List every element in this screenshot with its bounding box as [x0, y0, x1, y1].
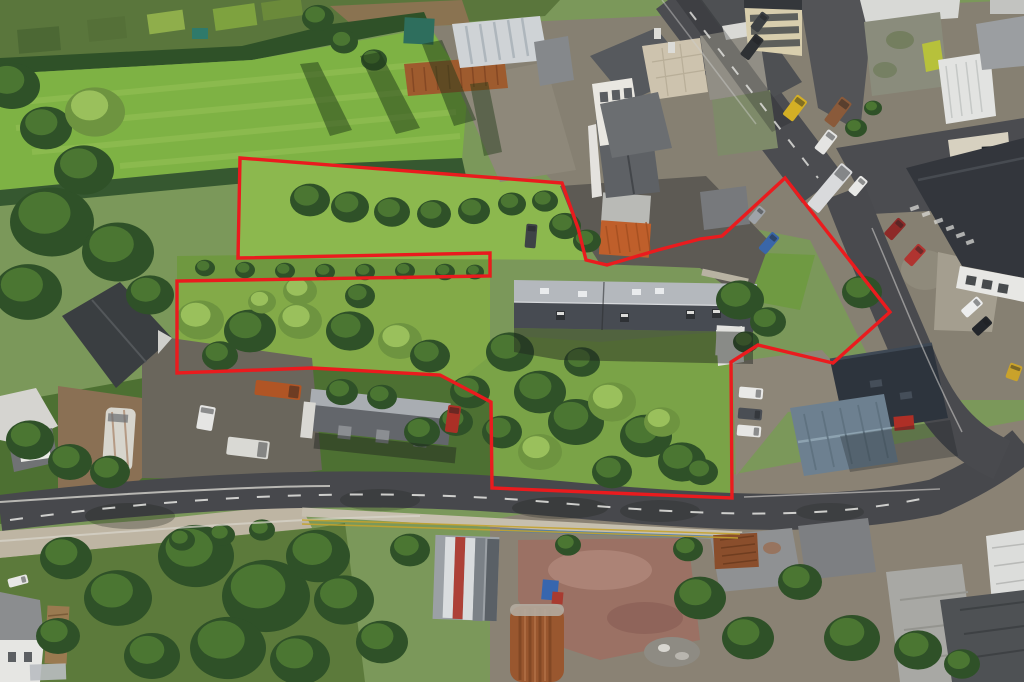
vehicle-windshield	[753, 427, 759, 435]
tree-canopy-light	[522, 436, 549, 458]
road-tree-shadow	[512, 497, 608, 519]
vegetation-16	[573, 230, 601, 253]
vegetation-59	[40, 537, 92, 580]
vegetation-32	[410, 340, 450, 373]
dormer-face	[687, 311, 694, 314]
vegetation-48	[482, 416, 522, 449]
house-window	[624, 88, 633, 99]
vegetation-11	[417, 200, 451, 228]
tree-canopy-light	[866, 102, 877, 111]
tree-canopy-light	[198, 621, 245, 659]
vehicle-windshield	[527, 226, 535, 232]
tree-canopy-light	[552, 214, 572, 230]
tree-canopy-light	[648, 409, 670, 427]
tree-canopy-light	[11, 423, 41, 447]
dark-van-lobe	[524, 224, 537, 249]
tractor-trailer	[551, 592, 563, 605]
dirt-patch	[607, 602, 683, 634]
vegetation-31	[345, 284, 375, 309]
vegetation-34	[248, 291, 276, 314]
greenhouse	[30, 663, 67, 680]
vegetation-38	[326, 379, 358, 405]
vegetation-65	[124, 633, 180, 679]
vegetation-85	[845, 119, 867, 137]
caravan-window	[108, 413, 129, 422]
tree-canopy-light	[172, 531, 188, 544]
tree-canopy-light	[71, 90, 108, 120]
vegetation-77	[824, 615, 880, 661]
road-tree-shadow	[340, 489, 420, 511]
vegetation-49	[592, 456, 632, 489]
tree-canopy-light	[558, 536, 574, 549]
vegetation-50	[644, 407, 680, 437]
tree-canopy-light	[333, 32, 350, 46]
aerial-photo-container: Aerial drone photograph of a village pro…	[0, 0, 1024, 682]
skylight	[655, 288, 664, 294]
vegetation-66	[36, 618, 80, 654]
vegetation-25	[176, 300, 224, 339]
tree-canopy-light	[45, 539, 77, 565]
white-metal-barn	[452, 16, 548, 68]
dirt-patch	[548, 550, 652, 590]
vegetation-79	[944, 649, 980, 679]
vegetation-33	[202, 341, 238, 371]
tree-canopy-light	[251, 292, 268, 306]
tree-canopy-light	[830, 618, 865, 646]
vegetation-47	[518, 434, 562, 470]
vegetation-63	[190, 617, 266, 679]
tree-canopy-light	[847, 120, 861, 131]
garden-pond	[192, 28, 208, 39]
tree-canopy-light	[320, 578, 357, 608]
tree-canopy-light	[378, 199, 400, 217]
parked-white-car	[737, 424, 762, 437]
vegetation-80	[673, 537, 703, 562]
rubble-pile	[644, 637, 700, 667]
vegetation-17	[195, 260, 215, 276]
dormer-face	[713, 310, 720, 313]
vegetation-36	[48, 444, 92, 480]
flat-grey-building	[700, 186, 750, 230]
vegetation-13	[498, 193, 526, 216]
vegetation-78	[894, 630, 942, 669]
tree-canopy-light	[420, 202, 441, 219]
moss-patch	[873, 62, 897, 78]
vegetation-71	[169, 529, 195, 550]
vegetation-44	[588, 382, 636, 421]
dormer-face	[557, 312, 564, 315]
skylight	[540, 288, 549, 294]
vegetation-83	[330, 31, 358, 54]
vehicle-windshield	[755, 389, 761, 397]
tree-canopy-light	[294, 186, 319, 206]
tree-canopy-light	[1, 268, 43, 302]
vegetation-81	[555, 534, 581, 555]
vegetation-69	[356, 621, 408, 664]
tree-canopy-light	[89, 226, 134, 262]
tree-canopy-light	[305, 6, 325, 22]
vegetation-3	[54, 145, 114, 194]
moss-patch	[886, 31, 914, 49]
vegetation-39	[367, 385, 397, 410]
vegetation-37	[90, 456, 130, 489]
vegetation-60	[84, 570, 152, 626]
tree-canopy-light	[276, 638, 313, 668]
vegetation-4	[126, 275, 174, 314]
skylight	[632, 289, 641, 295]
vegetation-10	[374, 197, 410, 227]
tree-canopy-light	[535, 192, 551, 205]
vegetation-35	[6, 420, 54, 459]
skylight	[578, 291, 587, 297]
tree-canopy-light	[554, 402, 589, 430]
vegetation-82	[302, 5, 334, 31]
parked-white-car	[739, 386, 764, 399]
road-tree-shadow	[796, 503, 864, 521]
shop-window	[997, 283, 1008, 294]
cottage-window	[8, 652, 16, 662]
tree-canopy-light	[721, 283, 751, 307]
tree-canopy-light	[131, 278, 161, 302]
tree-canopy-light	[25, 109, 57, 135]
tree-canopy-light	[689, 460, 709, 476]
vegetation-18	[235, 262, 255, 278]
vehicle-windshield	[257, 442, 268, 458]
tree-canopy-light	[408, 419, 430, 437]
road-tree-shadow	[85, 503, 175, 529]
tree-canopy-light	[94, 458, 119, 478]
tree-canopy-light	[948, 651, 970, 669]
shop-window	[965, 275, 976, 286]
tree-canopy-light	[181, 303, 211, 327]
tree-canopy-light	[237, 263, 249, 273]
garden-plot	[87, 16, 127, 42]
tree-canopy-light	[468, 266, 479, 275]
house-window	[612, 90, 621, 101]
house-window	[600, 92, 609, 103]
vegetation-27	[278, 303, 322, 339]
tree-canopy-light	[348, 285, 367, 300]
vegetation-19	[275, 263, 295, 279]
tree-canopy-light	[357, 265, 369, 275]
tr-grey-building	[976, 16, 1024, 70]
vehicle-windshield	[288, 385, 300, 398]
tree-canopy-light	[596, 458, 621, 478]
tree-canopy-light	[754, 309, 776, 327]
tree-canopy-light	[52, 446, 79, 468]
rubble-white	[658, 644, 670, 652]
vegetation-40	[404, 417, 440, 447]
vegetation-7	[65, 87, 125, 136]
tree-canopy-light	[91, 574, 133, 608]
tree-canopy-light	[382, 325, 409, 347]
vegetation-74	[674, 577, 726, 620]
chimney	[668, 42, 675, 53]
tree-canopy-light	[231, 564, 286, 608]
vegetation-28	[326, 311, 374, 350]
vegetation-86	[864, 101, 882, 116]
rubble-grey	[675, 652, 689, 660]
tree-canopy-light	[212, 526, 228, 539]
tree-canopy-light	[593, 385, 623, 409]
rust-patch	[763, 542, 781, 554]
tree-canopy-light	[229, 312, 261, 338]
tree-canopy-light	[679, 579, 711, 605]
tree-canopy-light	[282, 305, 309, 327]
tree-canopy-light	[292, 533, 332, 565]
vegetation-70	[390, 534, 430, 567]
tree-canopy-light	[130, 636, 165, 664]
tree-canopy-light	[899, 633, 929, 657]
tree-canopy-light	[361, 623, 393, 649]
tree-canopy-light	[331, 314, 361, 338]
vegetation-14	[532, 190, 558, 211]
tree-canopy-light	[461, 199, 481, 215]
vegetation-64	[286, 530, 350, 582]
tree-canopy-light	[394, 536, 419, 556]
tree-canopy-light	[206, 343, 228, 361]
shop-window	[981, 279, 992, 290]
vegetation-0	[10, 188, 94, 257]
parked-dark-car	[738, 407, 763, 420]
grey-outbuilding	[534, 36, 574, 86]
cottage-window	[24, 652, 32, 662]
chimney	[654, 28, 661, 39]
vegetation-67	[314, 575, 374, 624]
tree-canopy-light	[501, 194, 518, 208]
vegetation-9	[331, 191, 369, 222]
tree-canopy-light	[329, 380, 349, 396]
tree-canopy-light	[414, 342, 439, 362]
tree-canopy-light	[782, 566, 809, 588]
tree-canopy-light	[727, 619, 759, 645]
dormer-face	[621, 314, 628, 317]
vegetation-72	[209, 524, 235, 545]
vegetation-56	[750, 307, 786, 337]
aerial-site-photo	[0, 0, 1024, 682]
tree-canopy-light	[40, 620, 67, 642]
tree-canopy-light	[286, 279, 307, 296]
tree-canopy-light	[197, 261, 209, 271]
teal-roof-shed	[403, 17, 434, 45]
tree-canopy-light	[519, 373, 551, 399]
tree-canopy-light	[370, 386, 389, 401]
tree-canopy-light	[437, 265, 449, 275]
tree-canopy-light	[317, 265, 329, 275]
vegetation-6	[20, 107, 72, 150]
tree-canopy-light	[663, 445, 693, 469]
vegetation-8	[290, 184, 330, 217]
tr-roof-bit	[990, 0, 1024, 14]
vegetation-75	[722, 617, 774, 660]
vegetation-1	[82, 222, 154, 281]
vegetation-76	[778, 564, 822, 600]
vehicle-windshield	[754, 410, 760, 418]
tree-canopy-light	[60, 148, 97, 178]
tree-canopy-light	[676, 538, 695, 553]
tree-canopy-light	[335, 193, 359, 212]
garden-plot	[17, 26, 61, 54]
vegetation-12	[458, 198, 490, 224]
silo-top-band	[510, 604, 564, 616]
tree-canopy-light	[397, 264, 409, 274]
tree-canopy-light	[18, 192, 70, 234]
rusty-silo	[510, 606, 564, 682]
tree-canopy-light	[277, 264, 289, 274]
vegetation-51	[686, 459, 718, 485]
vegetation-30	[283, 277, 317, 305]
